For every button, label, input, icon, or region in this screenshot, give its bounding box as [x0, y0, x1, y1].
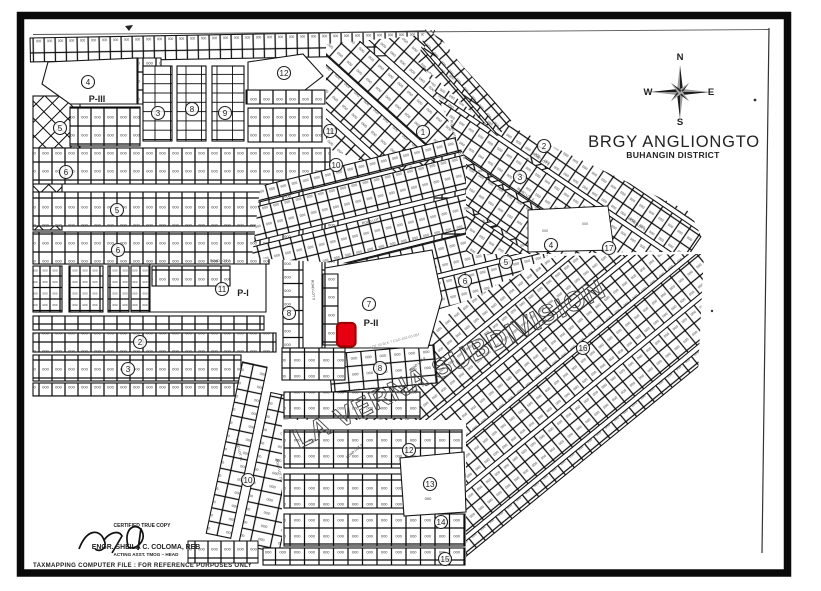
svg-text:4: 4 — [86, 78, 91, 87]
svg-text:10: 10 — [332, 161, 341, 170]
svg-text:BUHANGIN DISTRICT: BUHANGIN DISTRICT — [626, 150, 720, 160]
svg-text:5: 5 — [504, 258, 509, 267]
svg-text:8: 8 — [190, 105, 195, 114]
svg-text:6: 6 — [64, 168, 69, 177]
svg-text:000: 000 — [542, 229, 548, 233]
svg-text:11: 11 — [218, 285, 227, 294]
svg-text:13: 13 — [426, 480, 435, 489]
svg-text:2: 2 — [138, 338, 143, 347]
svg-text:16: 16 — [579, 344, 588, 353]
svg-text:P-I: P-I — [237, 288, 249, 298]
svg-text:CERTIFIED TRUE COPY: CERTIFIED TRUE COPY — [114, 523, 172, 529]
svg-text:000: 000 — [425, 496, 432, 501]
svg-text:3: 3 — [518, 173, 523, 182]
svg-text:5: 5 — [58, 124, 63, 133]
svg-text:5: 5 — [115, 206, 120, 215]
svg-text:2: 2 — [542, 142, 547, 151]
svg-text:1: 1 — [421, 128, 426, 137]
svg-text:000: 000 — [582, 222, 588, 226]
svg-text:P-III: P-III — [89, 94, 106, 104]
svg-text:12: 12 — [405, 446, 414, 455]
svg-text:17: 17 — [605, 244, 614, 253]
svg-text:8: 8 — [287, 309, 292, 318]
svg-text:4: 4 — [549, 241, 554, 250]
svg-text:E: E — [708, 87, 714, 98]
svg-text:6: 6 — [116, 246, 121, 255]
svg-text:14: 14 — [437, 518, 446, 527]
svg-text:TAXMAPPING COMPUTER FILE : FOR: TAXMAPPING COMPUTER FILE : FOR REFERENCE… — [33, 562, 252, 569]
svg-text:10: 10 — [244, 476, 253, 485]
svg-text:11: 11 — [326, 127, 335, 136]
svg-text:7: 7 — [367, 300, 372, 309]
svg-text:ACTING ASST. TMOG – HEAD: ACTING ASST. TMOG – HEAD — [114, 552, 180, 557]
svg-text:P-II: P-II — [364, 318, 379, 329]
svg-text:ROAD LOT 7: ROAD LOT 7 — [210, 259, 230, 263]
svg-text:12: 12 — [280, 69, 289, 78]
svg-text:BRGY ANGLIONGTO: BRGY ANGLIONGTO — [588, 133, 760, 151]
svg-text:S: S — [677, 117, 683, 128]
svg-text:ENGR. SHEILA C. COLOMA, RE: ENGR. SHEILA C. COLOMA, REB — [92, 544, 200, 551]
svg-text:3: 3 — [156, 109, 161, 118]
svg-text:9: 9 — [223, 109, 228, 118]
svg-text:W: W — [644, 87, 653, 98]
svg-text:15: 15 — [441, 555, 450, 564]
svg-text:3: 3 — [126, 365, 131, 374]
svg-text:N: N — [677, 52, 684, 63]
svg-text:8: 8 — [378, 364, 383, 373]
svg-text:6: 6 — [463, 277, 468, 286]
